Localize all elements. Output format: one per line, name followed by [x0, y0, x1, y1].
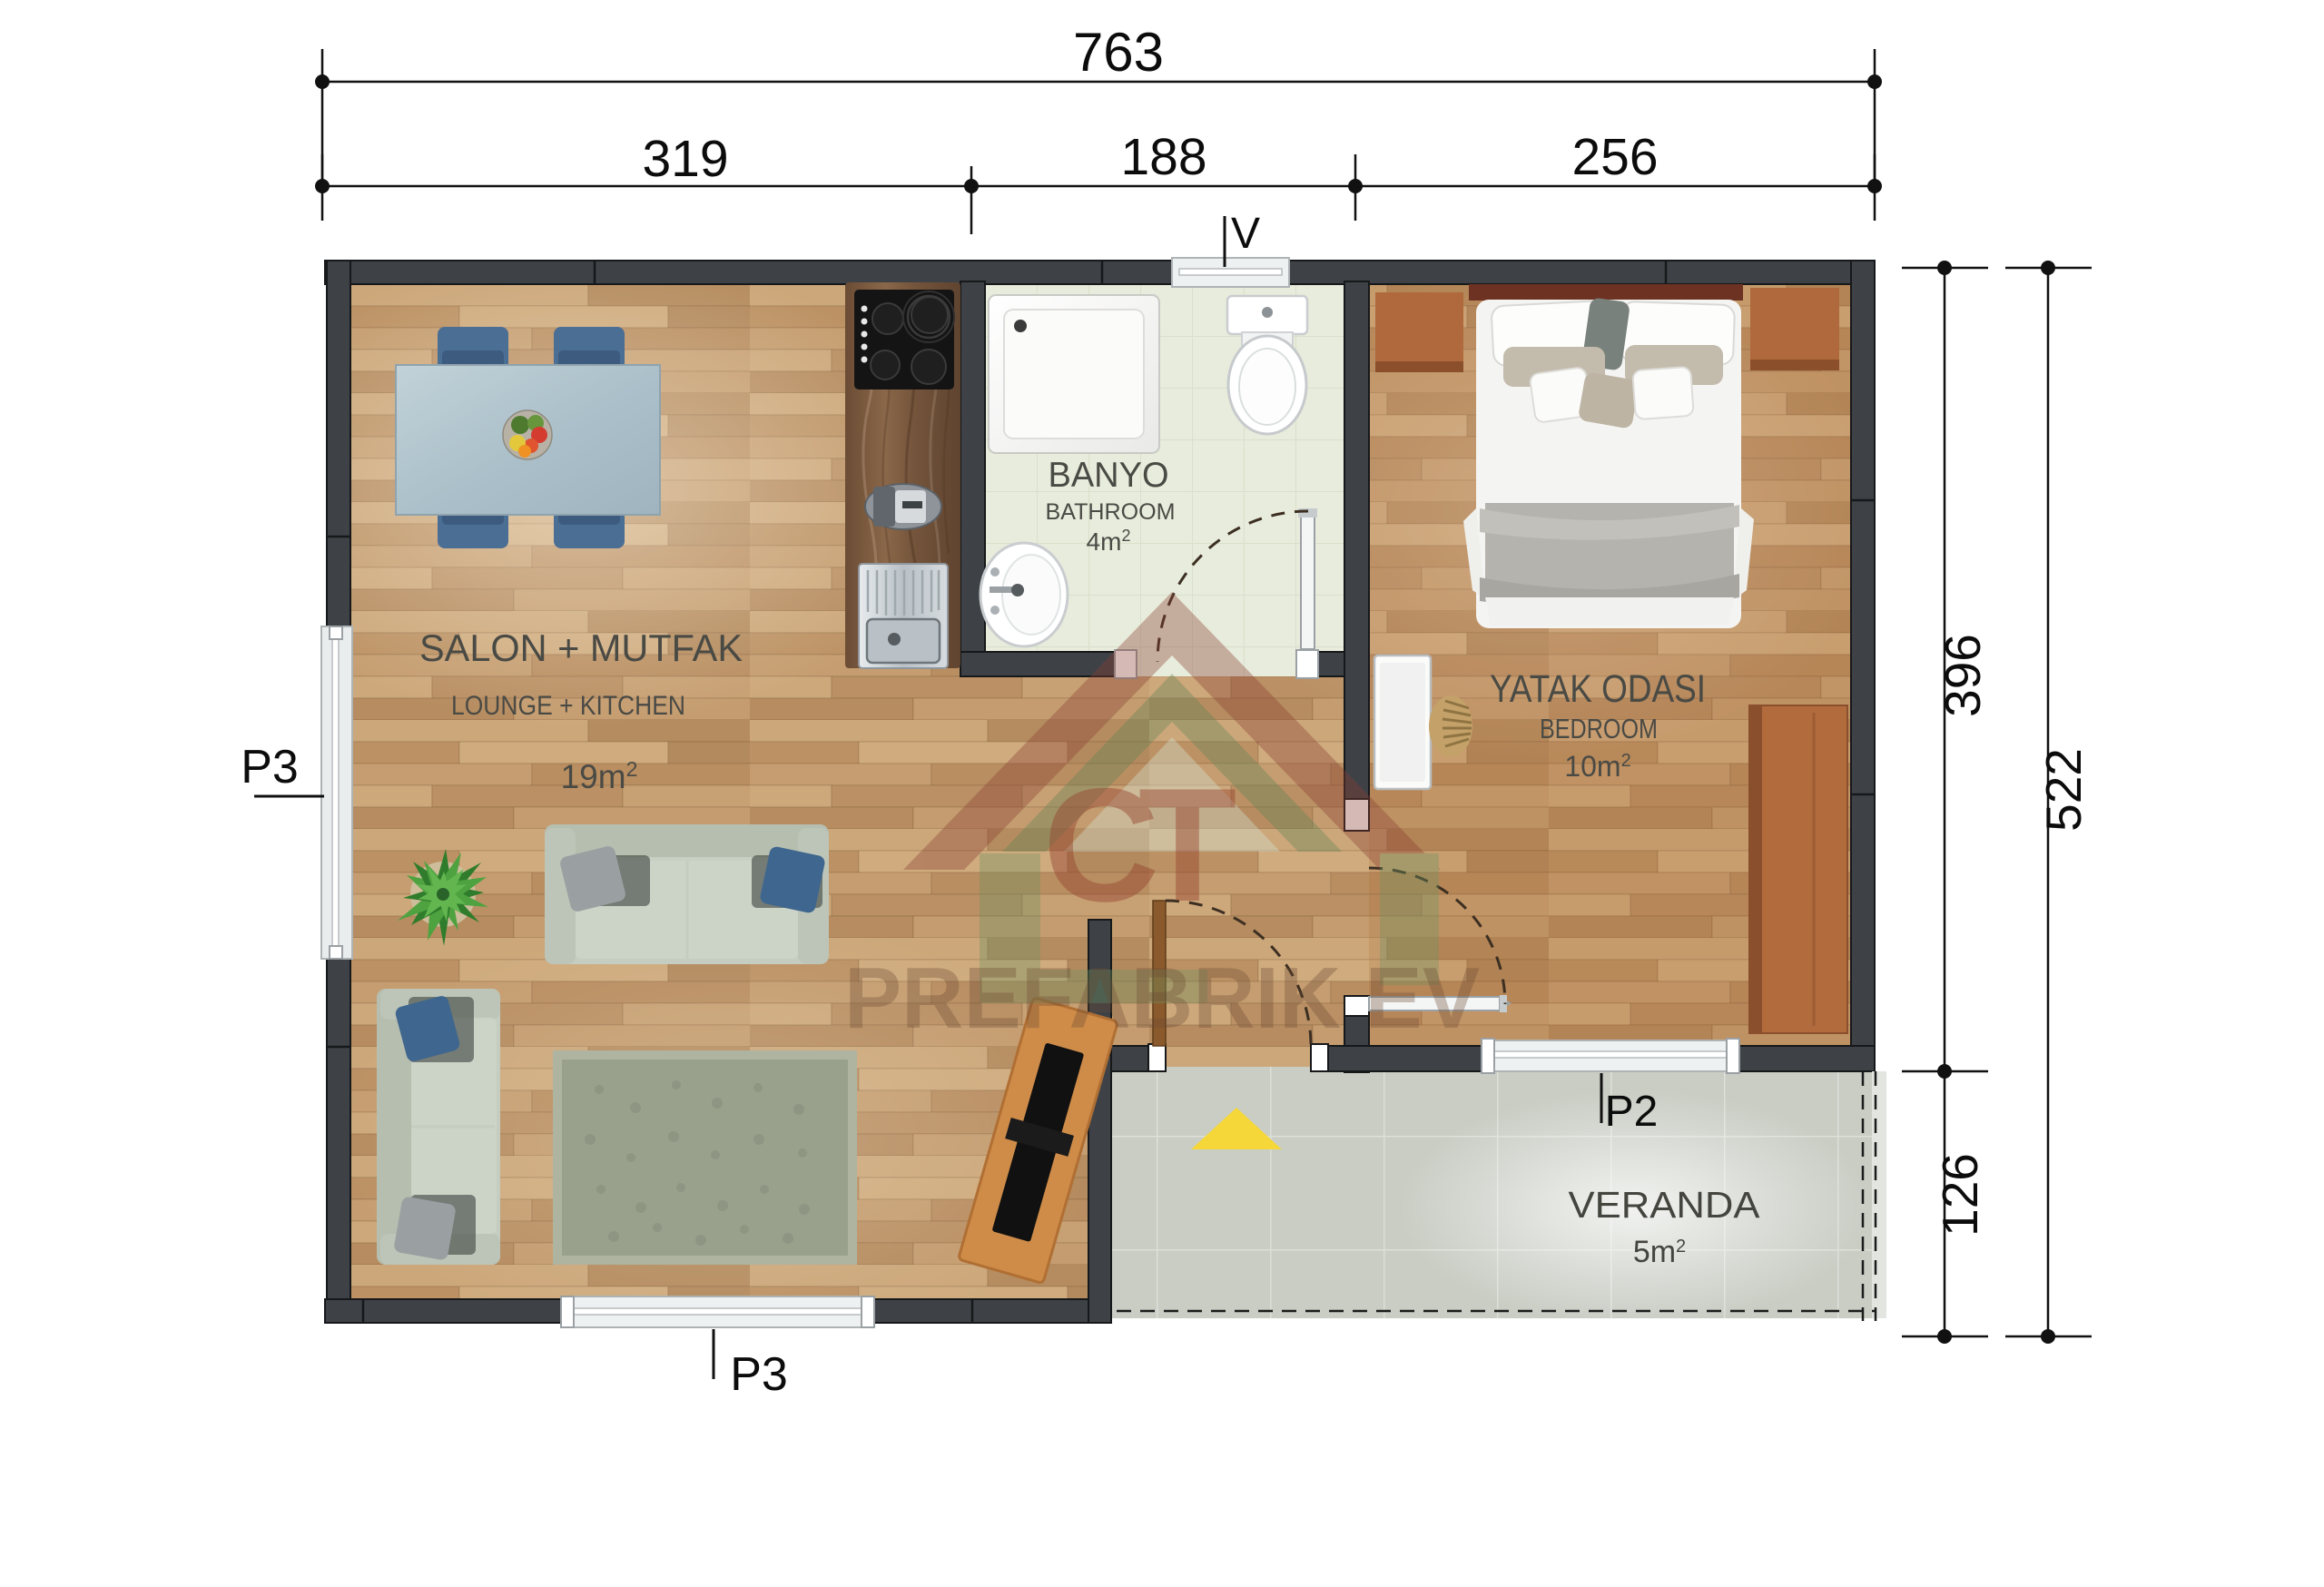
svg-text:P2: P2 [1605, 1088, 1659, 1136]
svg-text:VERANDA: VERANDA [1569, 1184, 1761, 1226]
svg-text:319: 319 [642, 130, 728, 188]
svg-text:PREFABRIK EV: PREFABRIK EV [844, 950, 1480, 1047]
svg-text:396: 396 [1935, 634, 1991, 717]
svg-text:SALON + MUTFAK: SALON + MUTFAK [419, 626, 743, 669]
svg-text:763: 763 [1073, 22, 1164, 83]
svg-text:126: 126 [1932, 1153, 1988, 1237]
svg-text:V: V [1231, 210, 1260, 258]
svg-text:BEDROOM: BEDROOM [1540, 713, 1658, 744]
svg-text:LOUNGE + KITCHEN: LOUNGE + KITCHEN [451, 691, 685, 721]
svg-text:BATHROOM: BATHROOM [1046, 499, 1176, 525]
svg-text:YATAK ODASI: YATAK ODASI [1490, 667, 1706, 711]
svg-text:P3: P3 [241, 741, 299, 793]
svg-text:522: 522 [2035, 748, 2092, 832]
svg-text:256: 256 [1571, 128, 1658, 186]
svg-text:T: T [1138, 754, 1237, 935]
svg-text:BANYO: BANYO [1049, 456, 1169, 495]
svg-text:188: 188 [1120, 128, 1206, 186]
svg-text:P3: P3 [730, 1348, 788, 1401]
